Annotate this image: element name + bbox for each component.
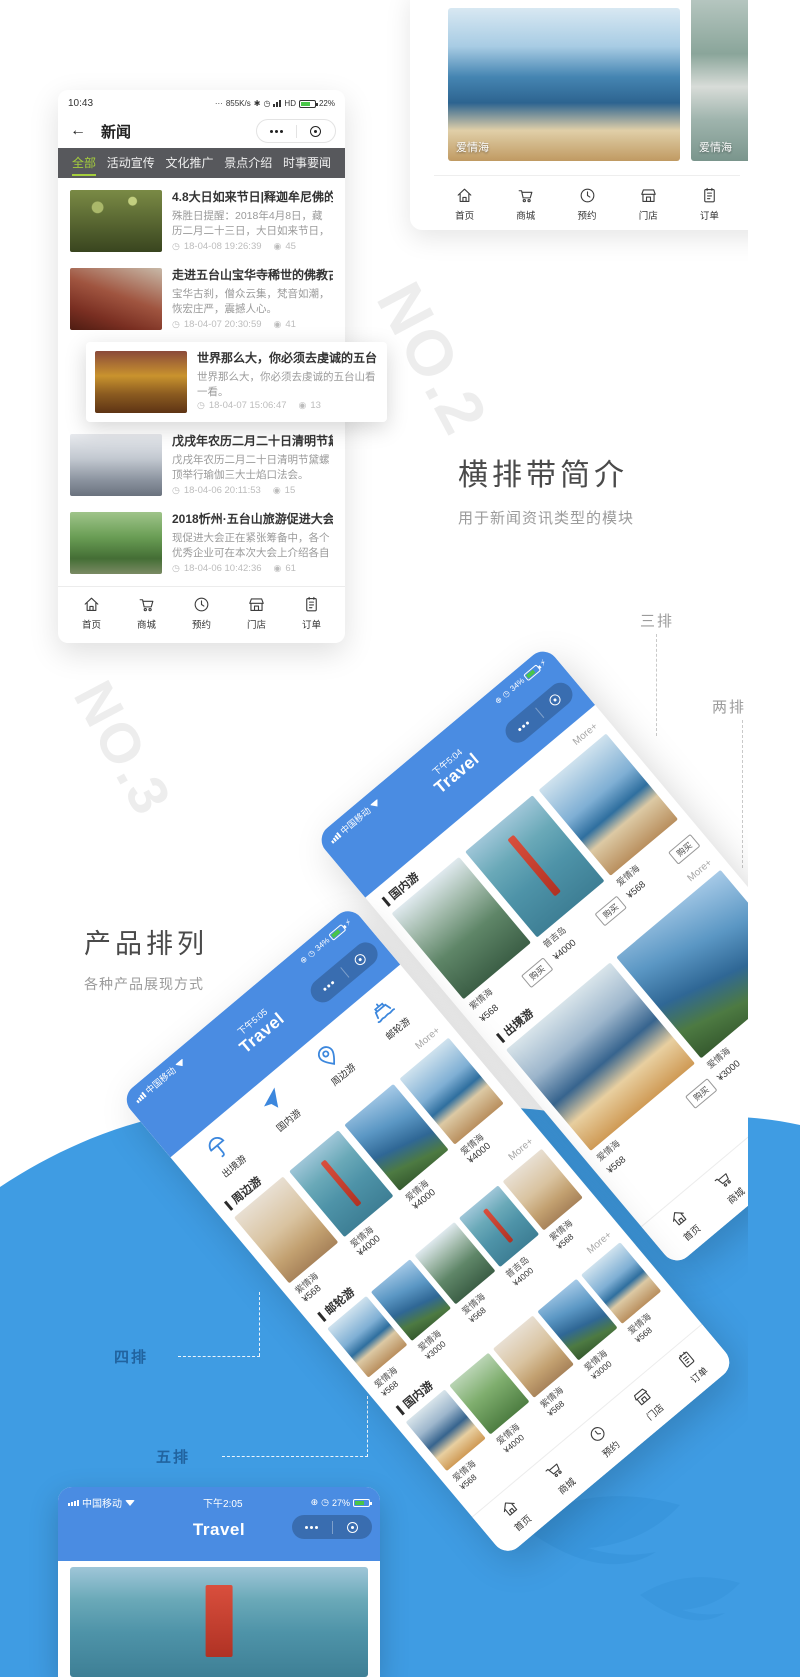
design-showcase-page: NO.2 NO.3 横排带简介 用于新闻资讯类型的模块 产品排列 各种产品展现方…: [0, 0, 800, 1677]
news-photo: [95, 351, 187, 413]
app-header: 中国移动 下午2:05 ⊕ ◷ 27% Travel: [58, 1487, 380, 1561]
tab-scenic[interactable]: 景点介绍: [224, 148, 272, 178]
news-title: 2018忻州·五台山旅游促进大会即将召: [172, 512, 333, 528]
news-title: 走进五台山宝华寺稀世的佛教古建筑: [172, 268, 333, 284]
tab-all[interactable]: 全部: [72, 148, 96, 178]
callout-four-line-h: [178, 1356, 260, 1357]
nav-orders[interactable]: 订单: [284, 595, 339, 631]
news-list: 4.8大日如来节日|释迦牟尼佛的清净报 殊胜日提醒：2018年4月8日，藏历二月…: [58, 178, 345, 582]
more-icon[interactable]: [327, 983, 331, 987]
wechat-capsule[interactable]: [256, 119, 336, 143]
tab-current[interactable]: 时事要闻: [283, 148, 331, 178]
views-icon: ◉: [274, 241, 282, 252]
news-desc: 殊胜日提醒：2018年4月8日，藏历二月二十三日，大日如来节日，作何善恶成亿倍!: [172, 209, 333, 239]
section2-title: 横排带简介: [458, 450, 634, 494]
news-item[interactable]: 走进五台山宝华寺稀世的佛教古建筑 宝华古刹，僧众云集，梵音如潮，恢宏庄严，震撼人…: [70, 260, 333, 338]
news-item[interactable]: 戊戌年农历二月二十日清明节黛螺顶举 戊戌年农历二月二十日清明节黛螺顶举行瑜伽三大…: [70, 426, 333, 504]
section-heading-3: 产品排列 各种产品展现方式: [84, 922, 208, 994]
status-bar: 10:43 ··· 855K/s ✱ ◷ HD 22%: [58, 90, 345, 114]
more-icon[interactable]: [275, 130, 278, 133]
minimize-target-icon[interactable]: [310, 126, 321, 137]
hero-photo[interactable]: [70, 1567, 368, 1677]
news-title: 世界那么大，你必须去虔诚的五台山看: [197, 351, 378, 367]
nav-home[interactable]: 首页: [64, 595, 119, 631]
tab-activity[interactable]: 活动宣传: [107, 148, 155, 178]
news-item[interactable]: 4.8大日如来节日|释迦牟尼佛的清净报 殊胜日提醒：2018年4月8日，藏历二月…: [70, 182, 333, 260]
news-item-highlighted[interactable]: 世界那么大，你必须去虔诚的五台山看 世界那么大，你必须去虔诚的五台山看一看。 ◷…: [86, 342, 387, 422]
news-desc: 戊戌年农历二月二十日清明节黛螺顶举行瑜伽三大士焰口法会。: [172, 453, 333, 483]
callout-three-line: [656, 634, 657, 736]
nav-label: 订单: [700, 208, 719, 222]
minimize-target-icon[interactable]: [347, 1522, 358, 1533]
store-icon: [639, 186, 658, 205]
section-bar: [395, 1405, 404, 1415]
gallery-photo[interactable]: 爱情海: [691, 0, 748, 161]
time-icon: ◷: [172, 241, 180, 252]
views-icon: ◉: [274, 563, 282, 574]
network-speed: 855K/s: [226, 99, 251, 108]
nav-label: 预约: [192, 617, 211, 631]
alarm-icon: ◷: [321, 1497, 329, 1508]
news-views: 45: [285, 241, 296, 252]
nav-label: 首页: [455, 208, 474, 222]
category-tabs: 全部 活动宣传 文化推广 景点介绍 时事要闻: [58, 148, 345, 178]
more-icon[interactable]: [310, 1526, 313, 1529]
cart-icon: [137, 595, 156, 614]
time-icon: ◷: [172, 319, 180, 330]
more-icon[interactable]: [521, 724, 525, 728]
news-views: 41: [285, 319, 296, 330]
watermark-no3: NO.3: [61, 670, 185, 827]
news-time: 18-04-08 19:26:39: [184, 241, 262, 252]
signal-icon: [329, 832, 341, 844]
back-icon[interactable]: ←: [70, 122, 86, 140]
news-desc: 世界那么大，你必须去虔诚的五台山看一看。: [197, 370, 378, 398]
nav-orders[interactable]: 订单: [679, 186, 740, 222]
callout-five-line-h: [222, 1456, 368, 1457]
gallery-phone-mockup: 爱情海 爱情海 首页 商城 预约 门店 订单: [410, 0, 748, 230]
news-photo: [70, 434, 162, 496]
wechat-capsule[interactable]: [292, 1515, 372, 1539]
home-icon: [455, 186, 474, 205]
time-icon: ◷: [172, 563, 180, 574]
section2-subtitle: 用于新闻资讯类型的模块: [458, 507, 634, 528]
news-title: 戊戌年农历二月二十日清明节黛螺顶举: [172, 434, 333, 450]
nav-shop[interactable]: 商城: [119, 595, 174, 631]
news-photo: [70, 512, 162, 574]
cart-icon: [516, 186, 535, 205]
news-views: 15: [285, 485, 296, 496]
battery-percent: 22%: [319, 99, 335, 108]
bottom-nav: 首页 商城 预约 门店 订单: [58, 586, 345, 641]
section-heading-2: 横排带简介 用于新闻资讯类型的模块: [458, 450, 634, 528]
section-bar: [224, 1200, 233, 1210]
nav-home[interactable]: 首页: [434, 186, 495, 222]
minimize-target-icon[interactable]: [352, 952, 367, 967]
travel-phone-c-mockup: 中国移动 下午2:05 ⊕ ◷ 27% Travel: [58, 1487, 380, 1677]
alarm-icon: ◷: [263, 99, 270, 108]
store-icon: [247, 595, 266, 614]
news-item[interactable]: 2018忻州·五台山旅游促进大会即将召 现促进大会正在紧张筹备中，各个优秀企业可…: [70, 504, 333, 582]
nav-store[interactable]: 门店: [229, 595, 284, 631]
home-icon: [82, 595, 101, 614]
bottom-nav: 首页 商城 预约 门店 订单: [434, 175, 740, 222]
news-views: 13: [310, 400, 321, 411]
callout-five-col: 五排: [156, 1446, 190, 1467]
news-photo: [70, 268, 162, 330]
battery-icon: [299, 100, 316, 108]
nav-label: 订单: [302, 617, 321, 631]
news-time: 18-04-06 20:11:53: [184, 485, 261, 496]
status-bar: 中国移动 下午2:05 ⊕ ◷ 27%: [58, 1487, 380, 1510]
orientation-lock-icon: ⊕: [311, 1497, 319, 1508]
photo-label: 爱情海: [699, 139, 732, 155]
nav-store[interactable]: 门店: [618, 186, 679, 222]
nav-booking[interactable]: 预约: [556, 186, 617, 222]
section-bar: [317, 1311, 326, 1321]
news-photo: [70, 190, 162, 252]
news-desc: 宝华古刹，僧众云集，梵音如潮，恢宏庄严，震撼人心。: [172, 287, 333, 317]
content-area: NO.2 NO.3 横排带简介 用于新闻资讯类型的模块 产品排列 各种产品展现方…: [0, 0, 748, 1677]
nav-label: 首页: [82, 617, 101, 631]
section-bar: [496, 1032, 505, 1042]
news-views: 61: [285, 563, 296, 574]
news-title: 4.8大日如来节日|释迦牟尼佛的清净报: [172, 190, 333, 206]
bluetooth-icon: ✱: [254, 99, 261, 108]
news-phone-mockup: 10:43 ··· 855K/s ✱ ◷ HD 22% ← 新闻: [58, 90, 345, 643]
title-bar: Travel: [58, 1510, 380, 1550]
battery-icon: [353, 1499, 370, 1507]
app-title: Travel: [193, 1520, 245, 1540]
status-time: 10:43: [68, 98, 93, 109]
tab-culture[interactable]: 文化推广: [165, 148, 213, 178]
callout-five-line-v: [367, 1396, 368, 1457]
section3-subtitle: 各种产品展现方式: [84, 974, 208, 994]
nav-bar: ← 新闻: [58, 114, 345, 148]
callout-two-col: 两排: [712, 696, 746, 717]
time-icon: ◷: [197, 400, 205, 411]
gallery-photo[interactable]: 爱情海: [448, 8, 680, 161]
signal-icon: [68, 1500, 79, 1506]
minimize-target-icon[interactable]: [547, 692, 562, 707]
views-icon: ◉: [273, 485, 281, 496]
news-time: 18-04-07 15:06:47: [209, 400, 287, 411]
nav-shop[interactable]: 商城: [495, 186, 556, 222]
signal-icon: [134, 1091, 146, 1103]
nav-label: 商城: [516, 208, 535, 222]
news-time: 18-04-06 10:42:36: [184, 563, 262, 574]
status-time: 下午2:05: [203, 1495, 242, 1510]
views-icon: ◉: [274, 319, 282, 330]
time-icon: ◷: [172, 485, 180, 496]
news-time: 18-04-07 20:30:59: [184, 319, 262, 330]
callout-two-line: [742, 720, 743, 868]
wifi-icon: [125, 1500, 135, 1506]
signal-icon: [273, 100, 281, 107]
network-type: HD: [284, 99, 296, 108]
carrier: 中国移动: [82, 1495, 122, 1510]
views-icon: ◉: [299, 400, 307, 411]
nav-label: 门店: [639, 208, 658, 222]
clock-icon: [192, 595, 211, 614]
page-title: 新闻: [101, 121, 131, 142]
order-icon: [700, 186, 719, 205]
nav-label: 门店: [247, 617, 266, 631]
section-bar: [381, 896, 390, 906]
order-icon: [302, 595, 321, 614]
clock-icon: [578, 186, 597, 205]
wifi-icon: [175, 1058, 187, 1069]
nav-label: 预约: [578, 208, 597, 222]
nav-booking[interactable]: 预约: [174, 595, 229, 631]
photo-label: 爱情海: [456, 139, 489, 155]
section3-title: 产品排列: [84, 922, 208, 961]
news-desc: 现促进大会正在紧张筹备中，各个优秀企业可在本次大会上介绍各自的企业文化等，大: [172, 531, 333, 561]
status-dots: ···: [215, 99, 223, 108]
battery-percent: 27%: [332, 1498, 350, 1508]
wifi-icon: [369, 798, 381, 809]
callout-three-col: 三排: [640, 610, 674, 631]
callout-four-line-v: [259, 1292, 260, 1356]
nav-label: 商城: [137, 617, 156, 631]
callout-four-col: 四排: [114, 1346, 148, 1367]
